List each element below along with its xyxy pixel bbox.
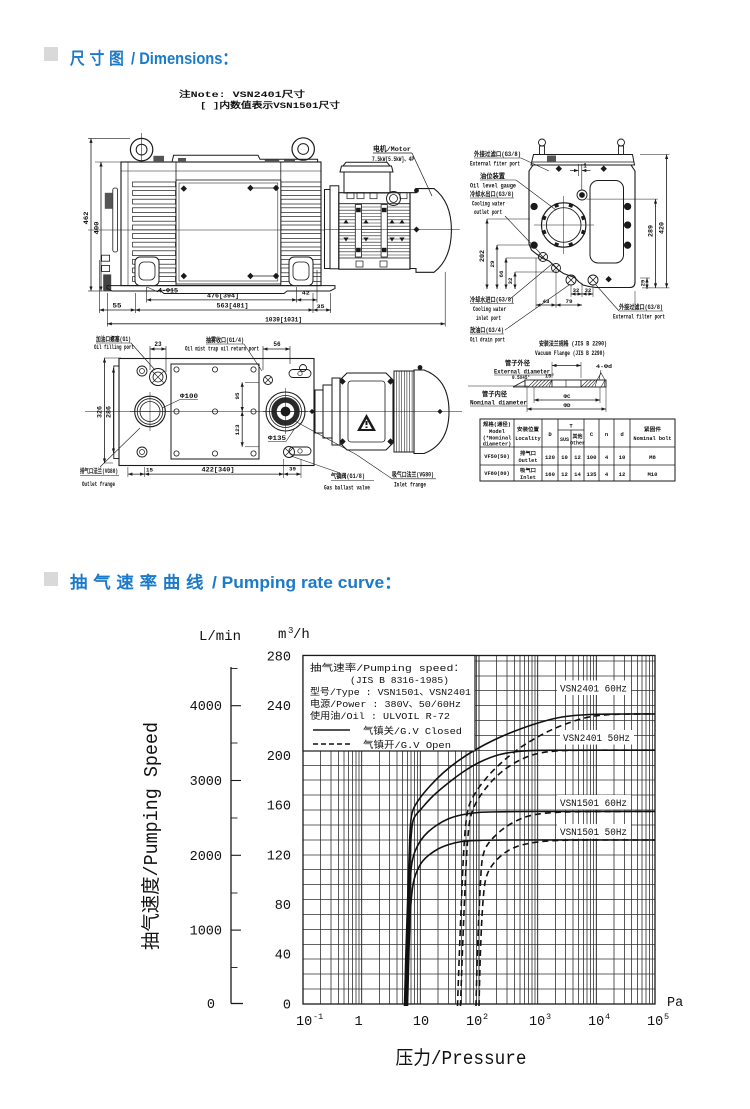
svg-text:Φ100: Φ100	[180, 393, 198, 400]
svg-text:Model: Model	[489, 429, 505, 435]
svg-text:462: 462	[83, 211, 90, 224]
svg-text:压力/Pressure: 压力/Pressure	[396, 1047, 527, 1070]
svg-text:n: n	[605, 431, 609, 438]
svg-text:123: 123	[234, 424, 241, 436]
svg-text:32: 32	[573, 287, 580, 294]
svg-text:Oil mist trap oil return port: Oil mist trap oil return port	[185, 346, 259, 353]
svg-text:External diameter: External diameter	[494, 369, 550, 376]
svg-text:M10: M10	[647, 471, 658, 478]
svg-text:200: 200	[267, 750, 291, 765]
svg-text:安装法兰规格 (JIS B 2290): 安装法兰规格 (JIS B 2290)	[539, 339, 607, 348]
svg-text:其他: 其他	[573, 433, 583, 440]
svg-text:55: 55	[113, 303, 122, 310]
svg-text:抽气速率/Pumping speed：: 抽气速率/Pumping speed：	[310, 662, 465, 674]
svg-text:吸气口: 吸气口	[520, 466, 536, 474]
svg-text:1000: 1000	[190, 925, 222, 940]
svg-text:[ ]内数值表示VSN1501尺寸: [ ]内数值表示VSN1501尺寸	[200, 100, 341, 111]
svg-text:2: 2	[483, 1012, 488, 1022]
svg-text:型号/Type : VSN1501、VSN2401: 型号/Type : VSN1501、VSN2401	[310, 687, 471, 698]
svg-text:紧固件: 紧固件	[644, 425, 662, 433]
svg-text:放油口(G3/4): 放油口(G3/4)	[469, 325, 504, 334]
svg-text:0: 0	[207, 998, 215, 1013]
svg-text:4: 4	[605, 1012, 610, 1022]
svg-text:Pa: Pa	[667, 996, 683, 1011]
svg-text:气镇开/G.V Open: 气镇开/G.V Open	[363, 739, 451, 751]
svg-text:1: 1	[583, 163, 587, 170]
svg-text:10: 10	[647, 1015, 663, 1030]
svg-text:规格(通径): 规格(通径)	[483, 420, 511, 428]
svg-text:95: 95	[234, 392, 241, 399]
svg-text:VSN2401 60Hz: VSN2401 60Hz	[560, 684, 627, 696]
svg-text:Cooling water: Cooling water	[472, 201, 505, 208]
svg-text:Inlet: Inlet	[520, 475, 536, 481]
svg-text:1039[1031]: 1039[1031]	[265, 316, 302, 323]
svg-text:120: 120	[545, 454, 556, 461]
svg-text:L/min: L/min	[199, 629, 241, 645]
svg-text:抽气速度/Pumping Speed: 抽气速度/Pumping Speed	[140, 722, 163, 950]
svg-text:120: 120	[267, 849, 291, 864]
svg-text:29: 29	[640, 279, 647, 286]
svg-text:Nominal bolt: Nominal bolt	[633, 436, 671, 442]
svg-text:C: C	[590, 431, 594, 438]
svg-text:29: 29	[489, 260, 496, 267]
svg-text:79: 79	[566, 298, 573, 305]
svg-text:ΦC: ΦC	[564, 393, 571, 400]
svg-text:气镇关/G.V Closed: 气镇关/G.V Closed	[363, 725, 462, 737]
svg-text:15: 15	[146, 466, 153, 473]
svg-text:VSN1501 50Hz: VSN1501 50Hz	[560, 827, 627, 839]
svg-text:7.5kW[5.5kW]、4P: 7.5kW[5.5kW]、4P	[372, 156, 414, 163]
svg-text:SUS: SUS	[560, 437, 569, 443]
svg-text:使用油/Oil : ULVOIL R-72: 使用油/Oil : ULVOIL R-72	[310, 710, 450, 722]
svg-text:280: 280	[267, 651, 291, 666]
svg-text:476[394]: 476[394]	[207, 292, 239, 299]
svg-text:2000: 2000	[190, 850, 222, 865]
svg-text:VF80(80): VF80(80)	[484, 471, 509, 477]
svg-text:外接过滤口(G3/8): 外接过滤口(G3/8)	[474, 149, 521, 158]
svg-text:Oil drain port: Oil drain port	[470, 337, 505, 344]
svg-text:12: 12	[619, 471, 626, 478]
svg-text:/h: /h	[293, 627, 310, 643]
svg-text:D: D	[548, 431, 552, 438]
svg-text:Cooling water: Cooling water	[473, 306, 506, 313]
svg-text:4000: 4000	[190, 700, 222, 715]
svg-text:32: 32	[585, 287, 592, 294]
svg-text:油位装置: 油位装置	[480, 171, 506, 180]
svg-text:管子内径: 管子内径	[482, 389, 508, 398]
svg-text:39: 39	[289, 465, 296, 472]
svg-text:1: 1	[354, 1015, 362, 1030]
svg-text:抽雾收口(G1/4): 抽雾收口(G1/4)	[206, 335, 244, 344]
svg-text:10: 10	[619, 454, 626, 461]
svg-text:Gas ballast valve: Gas ballast valve	[324, 485, 370, 492]
svg-text:32: 32	[507, 277, 514, 284]
svg-text:42: 42	[302, 290, 311, 297]
svg-text:160: 160	[545, 471, 556, 478]
svg-text:12: 12	[561, 471, 568, 478]
svg-text:Other: Other	[570, 441, 585, 447]
svg-text:安装位置: 安装位置	[517, 425, 540, 433]
svg-text:563[481]: 563[481]	[217, 303, 249, 310]
svg-text:0: 0	[283, 998, 291, 1013]
svg-text:240: 240	[267, 700, 291, 715]
svg-text:160: 160	[267, 800, 291, 815]
svg-text:-1: -1	[313, 1012, 323, 1022]
svg-text:135: 135	[586, 471, 597, 478]
svg-text:12: 12	[574, 454, 581, 461]
svg-text:d: d	[620, 431, 623, 438]
svg-text:14: 14	[574, 471, 581, 478]
svg-text:排气口法兰(VG80): 排气口法兰(VG80)	[80, 466, 118, 475]
svg-text:VF50(50): VF50(50)	[484, 454, 509, 460]
svg-text:ΦD: ΦD	[564, 402, 571, 409]
svg-text:outlet port: outlet port	[474, 209, 502, 216]
svg-text:Inlet frange: Inlet frange	[394, 482, 426, 489]
svg-text:VSN2401 50Hz: VSN2401 50Hz	[563, 733, 630, 745]
svg-text:56: 56	[273, 341, 281, 348]
svg-text:4: 4	[605, 454, 609, 461]
svg-text:202: 202	[479, 250, 486, 262]
svg-text:Vacuum Flange (JIS B 2290): Vacuum Flange (JIS B 2290)	[535, 350, 605, 357]
svg-text:注Note: VSN2401尺寸: 注Note: VSN2401尺寸	[179, 89, 306, 100]
svg-text:420: 420	[659, 222, 666, 234]
svg-text:External fiter port: External fiter port	[470, 161, 520, 168]
svg-text:10: 10	[413, 1015, 429, 1030]
svg-text:inlet port: inlet port	[476, 315, 501, 322]
svg-text:气镇阀(G1/8): 气镇阀(G1/8)	[330, 471, 365, 480]
svg-text:5: 5	[664, 1012, 669, 1022]
svg-text:m: m	[278, 627, 286, 643]
svg-text:10: 10	[529, 1015, 545, 1030]
svg-text:326: 326	[97, 406, 104, 418]
svg-text:80: 80	[275, 899, 291, 914]
svg-text:Φ135: Φ135	[268, 435, 286, 442]
svg-text:External filter port: External filter port	[613, 314, 665, 321]
svg-text:400: 400	[94, 221, 101, 234]
svg-text:10: 10	[466, 1015, 482, 1030]
svg-text:Oil level gauge: Oil level gauge	[470, 183, 516, 190]
svg-text:(JIS B 8316-1985): (JIS B 8316-1985)	[350, 675, 449, 686]
svg-text:10: 10	[588, 1015, 604, 1030]
svg-text:外接过滤口(G3/8): 外接过滤口(G3/8)	[619, 302, 663, 311]
svg-text:diameter): diameter)	[483, 442, 512, 448]
svg-text:3000: 3000	[190, 775, 222, 790]
svg-text:100: 100	[586, 454, 597, 461]
svg-text:3: 3	[546, 1012, 551, 1022]
svg-text:286: 286	[106, 406, 113, 418]
svg-text:Outlet: Outlet	[518, 458, 537, 464]
svg-text:排气口: 排气口	[520, 449, 536, 457]
svg-text:0.5X45°: 0.5X45°	[512, 375, 530, 381]
svg-text:Nominal diameter: Nominal diameter	[470, 400, 527, 407]
svg-text:电机/Motor: 电机/Motor	[373, 144, 411, 154]
svg-text:4-Φd: 4-Φd	[596, 363, 612, 370]
svg-text:10: 10	[296, 1015, 312, 1030]
svg-text:Oil filling port: Oil filling port	[94, 344, 134, 351]
svg-text:422[340]: 422[340]	[202, 466, 235, 473]
svg-text:66: 66	[498, 270, 505, 277]
svg-text:10: 10	[561, 454, 568, 461]
svg-text:Outlet frange: Outlet frange	[82, 481, 115, 488]
svg-text:VSN1501 60Hz: VSN1501 60Hz	[560, 798, 627, 810]
svg-text:T: T	[569, 423, 573, 430]
svg-text:电源/Power : 380V、50/60Hz: 电源/Power : 380V、50/60Hz	[310, 698, 461, 710]
svg-text:23: 23	[154, 341, 162, 348]
svg-text:4-Φ15: 4-Φ15	[158, 287, 178, 294]
svg-text:管子外径: 管子外径	[505, 358, 531, 367]
svg-text:冷却水进口(G3/8): 冷却水进口(G3/8)	[470, 295, 514, 304]
svg-text:Locality: Locality	[515, 436, 541, 442]
svg-text:M8: M8	[649, 454, 656, 461]
svg-text:冷却水出口(G3/8): 冷却水出口(G3/8)	[470, 189, 514, 198]
svg-text:4: 4	[605, 471, 609, 478]
svg-text:35: 35	[317, 303, 326, 310]
svg-text:吸气口法兰(VG80): 吸气口法兰(VG80)	[392, 470, 434, 479]
svg-text:289: 289	[648, 225, 655, 237]
svg-text:加油口螺塞(G1): 加油口螺塞(G1)	[95, 334, 131, 343]
svg-text:40: 40	[275, 949, 291, 964]
